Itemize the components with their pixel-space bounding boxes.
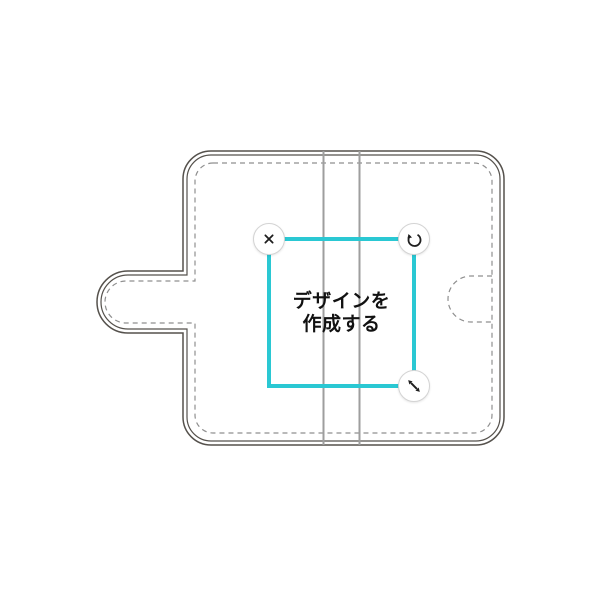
- delete-button[interactable]: [253, 223, 285, 255]
- design-selection-box[interactable]: デザインを 作成する: [267, 237, 416, 388]
- design-placeholder-text[interactable]: デザインを 作成する: [293, 290, 391, 336]
- resize-handle[interactable]: [398, 370, 430, 402]
- resize-diagonal-icon: [404, 376, 424, 396]
- placeholder-line-1: デザインを: [293, 290, 391, 313]
- rotate-ccw-icon: [404, 229, 425, 250]
- rotate-handle[interactable]: [398, 223, 430, 255]
- design-editor-canvas: デザインを 作成する: [0, 0, 600, 600]
- placeholder-line-2: 作成する: [293, 313, 391, 336]
- close-icon: [259, 229, 279, 249]
